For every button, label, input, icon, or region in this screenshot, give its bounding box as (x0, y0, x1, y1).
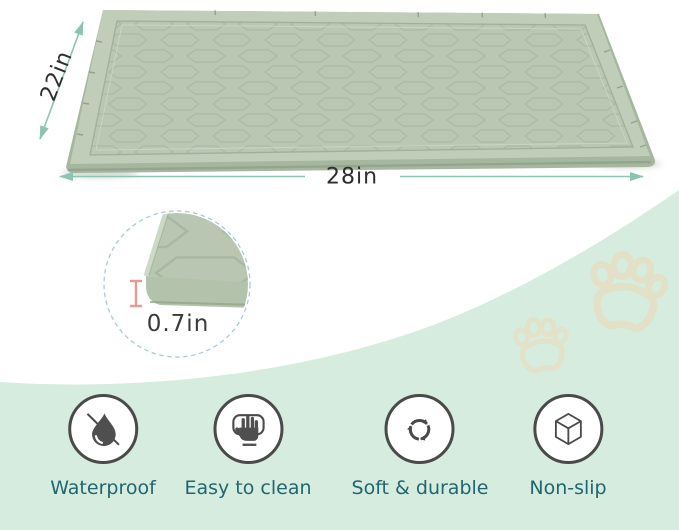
mat-illustration (66, 10, 655, 173)
thickness-dimension-label: 0.7in (147, 311, 210, 337)
feature-label: Waterproof (50, 477, 156, 499)
feature-waterproof: Waterproof (50, 394, 156, 499)
water-drop-crossed-icon (68, 394, 138, 464)
width-dimension-label: 28in (320, 165, 384, 190)
feature-non-slip: Non-slip (529, 394, 606, 499)
hand-wipe-icon (213, 394, 283, 464)
feature-soft-durable: Soft & durable (352, 394, 489, 499)
cube-icon (533, 394, 603, 464)
feature-easy-to-clean: Easy to clean (184, 394, 311, 499)
recycle-arrows-icon (385, 394, 455, 464)
feature-label: Soft & durable (352, 477, 489, 499)
feature-label: Non-slip (529, 477, 606, 499)
feature-label: Easy to clean (184, 477, 311, 499)
product-infographic: 22in 28in 0.7in Waterproof (0, 0, 679, 530)
